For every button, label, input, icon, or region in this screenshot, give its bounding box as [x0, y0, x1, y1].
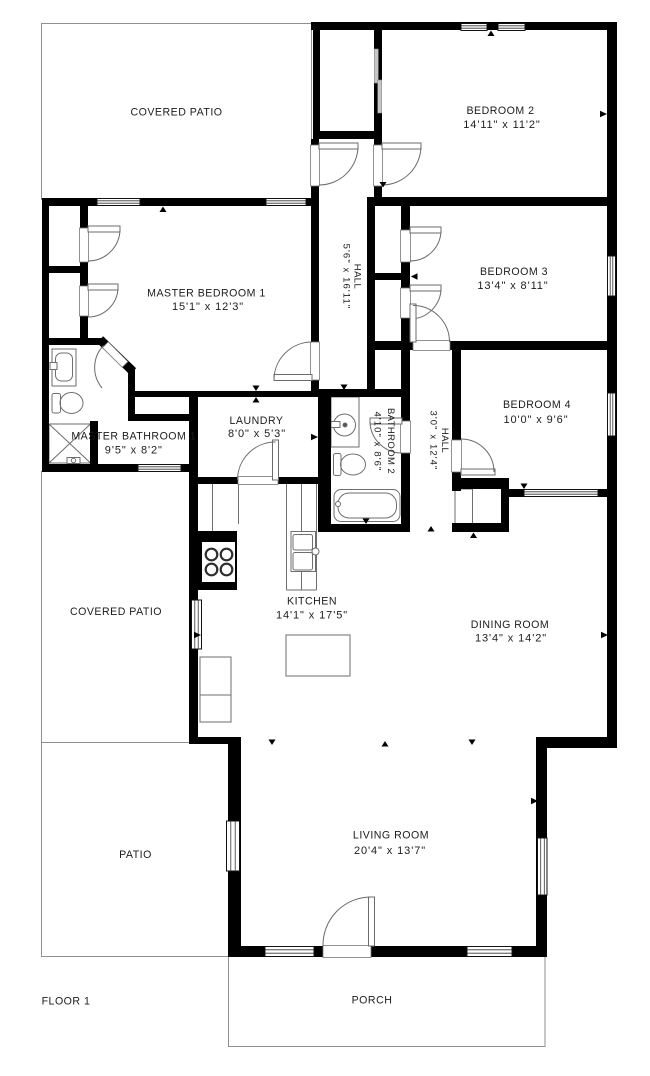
svg-text:13'4" x 14'2": 13'4" x 14'2"	[475, 633, 547, 645]
svg-text:FLOOR 1: FLOOR 1	[42, 996, 91, 1008]
svg-text:15'1" x 12'3": 15'1" x 12'3"	[172, 301, 244, 313]
svg-text:3'0" x 12'4": 3'0" x 12'4"	[428, 410, 439, 470]
svg-text:10'0" x 9'6": 10'0" x 9'6"	[503, 414, 568, 426]
svg-text:8'0" x 5'3": 8'0" x 5'3"	[228, 428, 286, 440]
svg-text:HALL: HALL	[352, 264, 363, 289]
svg-text:13'4" x 8'11": 13'4" x 8'11"	[477, 280, 548, 292]
svg-text:LAUNDRY: LAUNDRY	[230, 415, 284, 427]
svg-text:BATHROOM 2: BATHROOM 2	[385, 408, 396, 474]
svg-text:20'4" x 13'7": 20'4" x 13'7"	[354, 845, 426, 857]
svg-text:COVERED PATIO: COVERED PATIO	[70, 606, 162, 618]
svg-text:14'11" x 11'2": 14'11" x 11'2"	[463, 119, 540, 131]
svg-text:HALL: HALL	[439, 428, 450, 453]
svg-text:5'6" x 16'11": 5'6" x 16'11"	[340, 244, 351, 310]
svg-text:9'5" x 8'2": 9'5" x 8'2"	[105, 445, 163, 457]
svg-text:COVERED PATIO: COVERED PATIO	[130, 107, 222, 119]
svg-text:PORCH: PORCH	[352, 995, 393, 1007]
svg-text:MASTER BEDROOM 1: MASTER BEDROOM 1	[147, 288, 266, 300]
svg-text:DINING ROOM: DINING ROOM	[471, 619, 549, 631]
svg-text:KITCHEN: KITCHEN	[287, 596, 337, 608]
svg-text:MASTER BATHROOM 1: MASTER BATHROOM 1	[71, 431, 196, 443]
svg-text:LIVING ROOM: LIVING ROOM	[353, 830, 429, 842]
svg-text:BEDROOM 3: BEDROOM 3	[480, 266, 548, 278]
svg-text:PATIO: PATIO	[119, 849, 152, 861]
svg-text:BEDROOM 4: BEDROOM 4	[503, 399, 571, 411]
svg-text:4'10" x 8'6": 4'10" x 8'6"	[372, 411, 383, 471]
svg-text:BEDROOM 2: BEDROOM 2	[466, 105, 534, 117]
svg-text:14'1" x 17'5": 14'1" x 17'5"	[276, 610, 348, 622]
